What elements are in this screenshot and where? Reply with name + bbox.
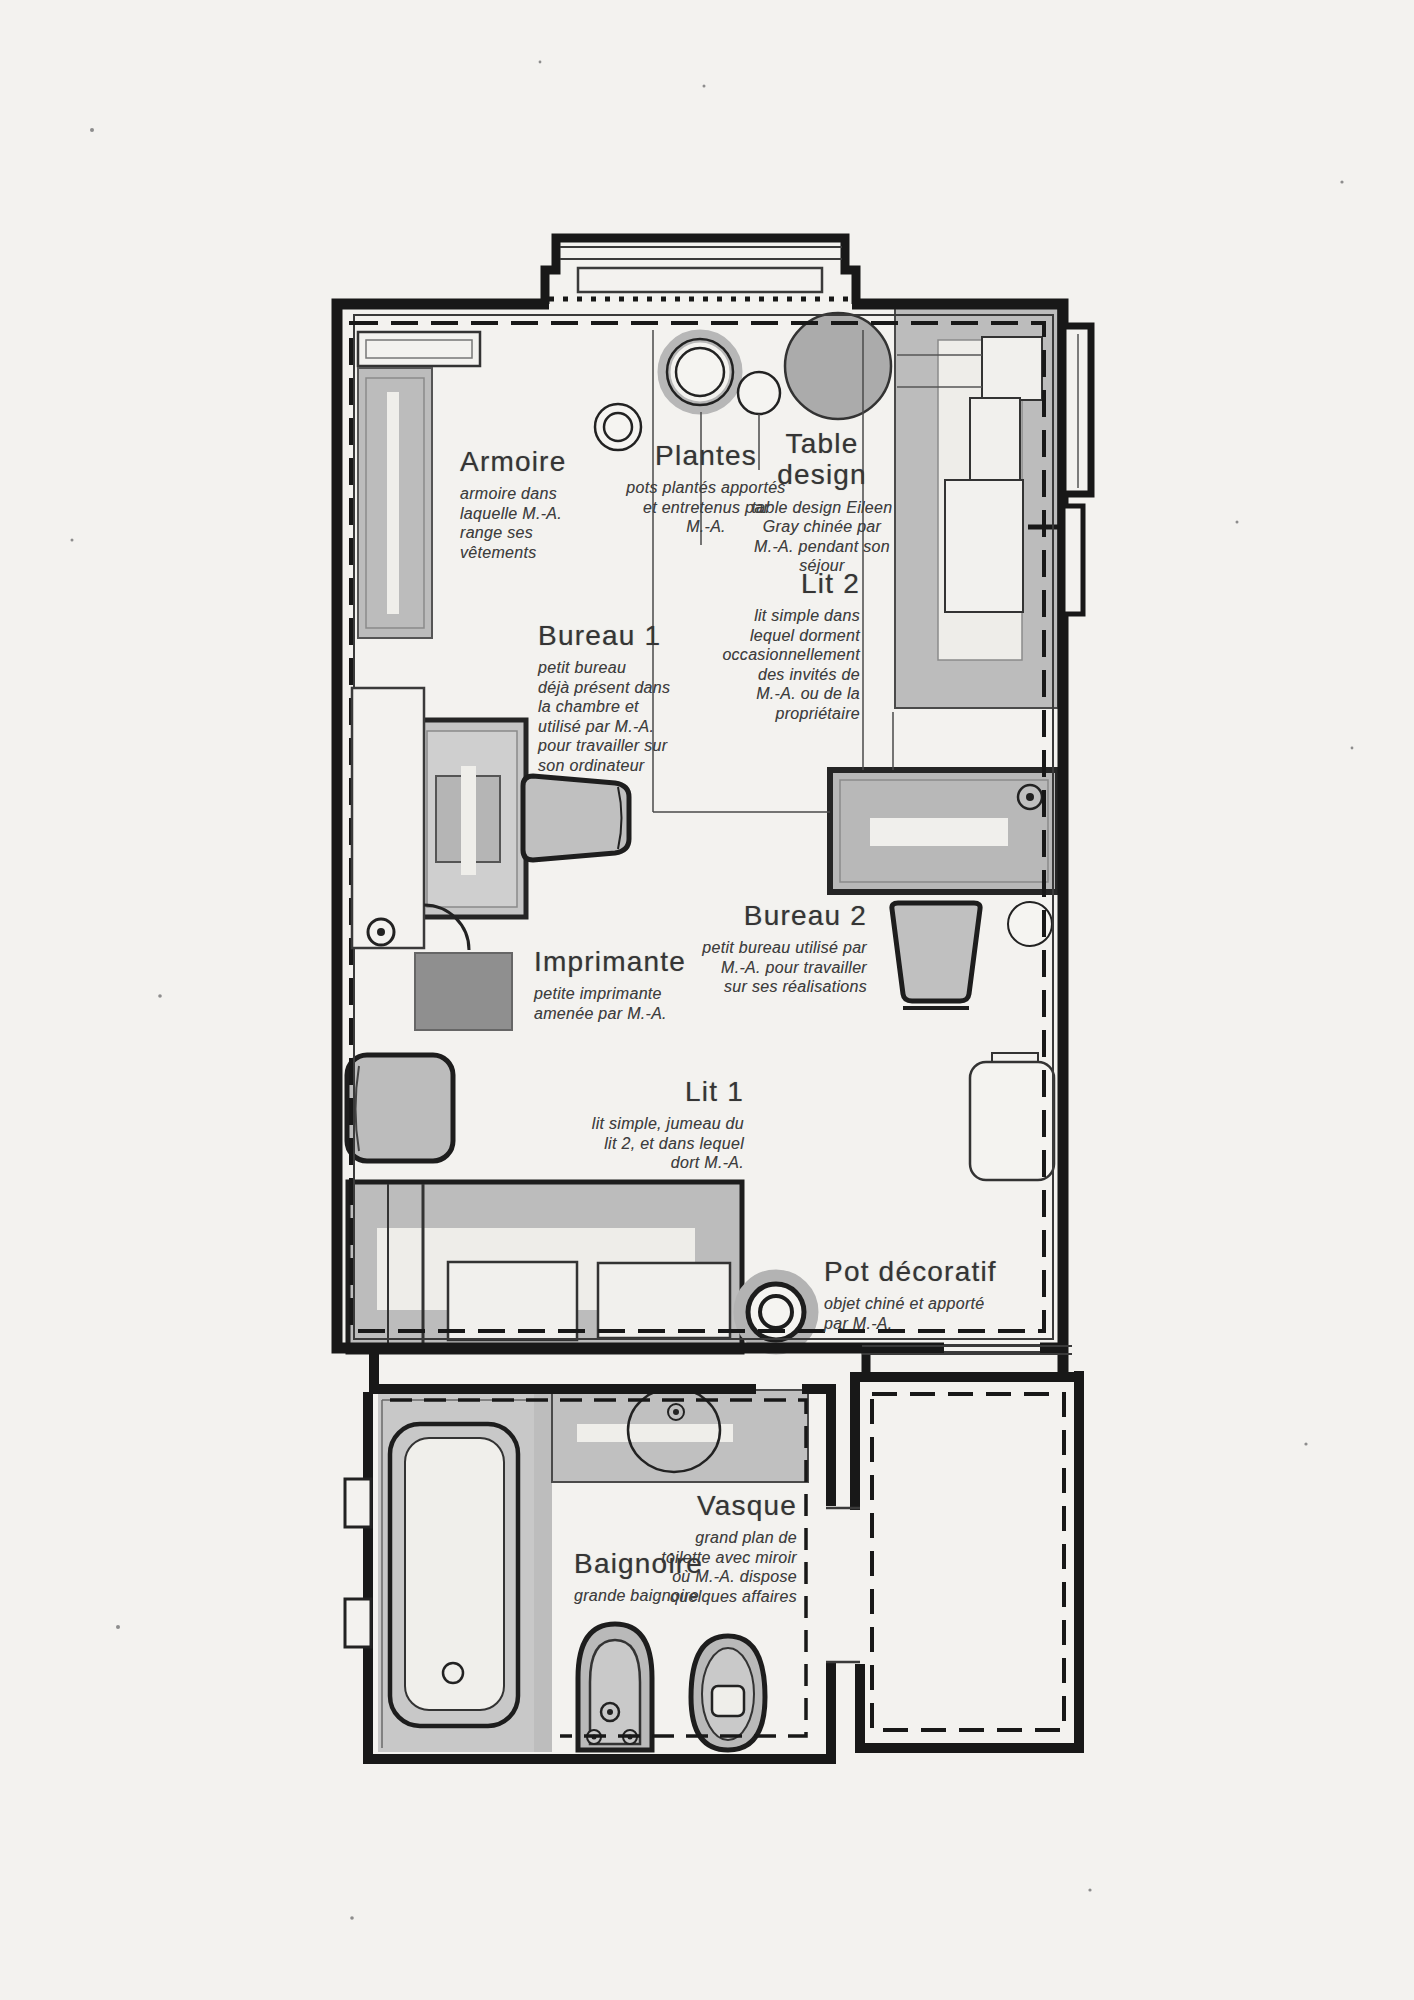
label-armoire-description: armoire dans laquelle M.-A. range ses vê… [460, 484, 620, 562]
label-bureau1-title: Bureau 1 [538, 620, 748, 651]
label-bureau1-description: petit bureau déjà présent dans la chambr… [538, 658, 748, 775]
label-baignoire-title: Baignoire [574, 1548, 794, 1579]
label-table-design-title: Table design [732, 428, 912, 491]
label-armoire-title: Armoire [460, 446, 620, 477]
label-bureau1: Bureau 1 petit bureau déjà présent dans … [538, 620, 748, 775]
shelf-top-left [358, 332, 480, 366]
wc-bidet [578, 1624, 652, 1750]
bureau2-chair [892, 903, 980, 1008]
lit1-bed [348, 1182, 742, 1352]
plant-pot-small [738, 372, 780, 414]
nightstand [970, 1053, 1054, 1180]
label-armoire: Armoire armoire dans laquelle M.-A. rang… [460, 446, 620, 562]
table-design-top [785, 313, 891, 419]
floor-plan-page: Armoire armoire dans laquelle M.-A. rang… [0, 0, 1414, 2000]
pouf-armchair [347, 1055, 453, 1161]
lit2-bed [895, 302, 1058, 708]
label-table-design-description: table design Eileen Gray chinée par M.-A… [732, 498, 912, 576]
label-bureau2-description: petit bureau utilisé par M.-A. pour trav… [637, 938, 867, 997]
label-pot-decoratif-title: Pot décoratif [824, 1256, 1064, 1287]
label-pot-decoratif-description: objet chiné et apporté par M.-A. [824, 1294, 1064, 1333]
bureau1-desk [418, 720, 526, 917]
label-lit1-title: Lit 1 [514, 1076, 744, 1107]
label-lit1-description: lit simple, jumeau du lit 2, et dans leq… [514, 1114, 744, 1173]
baignoire-tub [390, 1424, 518, 1726]
pot-decoratif [740, 1276, 812, 1348]
label-bureau2: Bureau 2 petit bureau utilisé par M.-A. … [637, 900, 867, 997]
imprimante-printer [415, 953, 512, 1030]
label-lit2-title: Lit 2 [640, 568, 860, 599]
label-baignoire-description: grande baignoire [574, 1586, 794, 1606]
armoire-furniture [358, 368, 432, 638]
toilet [691, 1636, 765, 1750]
bureau1-chair [523, 776, 629, 860]
bureau2-desk [830, 770, 1058, 892]
label-bureau2-title: Bureau 2 [637, 900, 867, 931]
label-lit1: Lit 1 lit simple, jumeau du lit 2, et da… [514, 1076, 744, 1173]
plant-pot-large [659, 331, 741, 413]
label-baignoire: Baignoire grande baignoire [574, 1548, 794, 1606]
label-vasque-title: Vasque [567, 1490, 797, 1521]
label-table-design: Table design table design Eileen Gray ch… [732, 428, 912, 576]
label-pot-decoratif: Pot décoratif objet chiné et apporté par… [824, 1256, 1064, 1333]
